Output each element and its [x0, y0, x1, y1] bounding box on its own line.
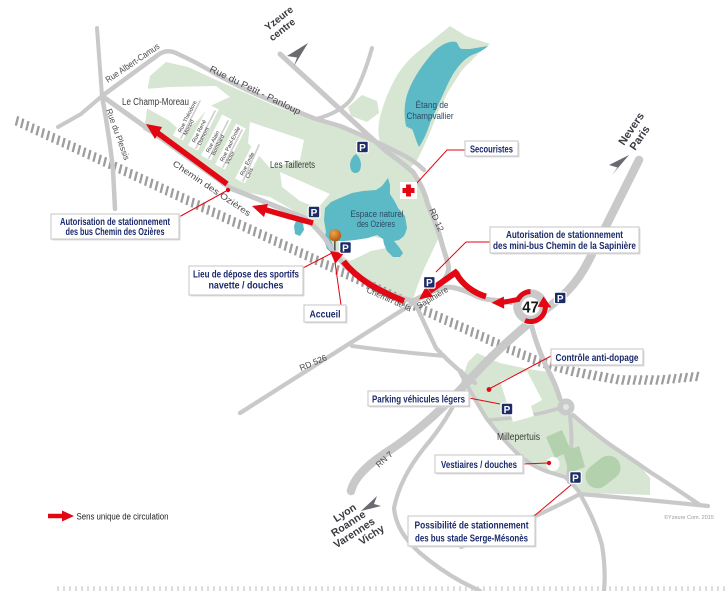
svg-text:©Yzeure Com. 2015: ©Yzeure Com. 2015: [664, 514, 714, 521]
svg-text:Possibilité de stationnement: Possibilité de stationnement: [415, 521, 530, 532]
svg-text:des bus stade Serge-Mésonès: des bus stade Serge-Mésonès: [415, 534, 528, 545]
svg-text:P: P: [426, 278, 433, 289]
svg-text:des bus Chemin des Ozières: des bus Chemin des Ozières: [66, 227, 165, 238]
svg-text:P: P: [504, 405, 511, 416]
svg-text:Vestiaires / douches: Vestiaires / douches: [441, 460, 517, 471]
svg-text:Contrôle anti-dopage: Contrôle anti-dopage: [556, 353, 639, 364]
svg-text:P: P: [359, 143, 366, 154]
svg-text:des mini-bus Chemin de la Sapi: des mini-bus Chemin de la Sapinière: [493, 241, 636, 252]
svg-text:Secouristes: Secouristes: [470, 144, 513, 155]
svg-text:Étang de: Étang de: [416, 100, 449, 111]
svg-text:navette / douches: navette / douches: [209, 281, 284, 292]
svg-text:Millepertuis: Millepertuis: [497, 432, 540, 443]
svg-text:Champvallier: Champvallier: [407, 111, 454, 122]
svg-text:Les Taillerets: Les Taillerets: [270, 160, 315, 171]
svg-text:Parking véhicules légers: Parking véhicules légers: [372, 395, 465, 406]
svg-text:Sens unique de circulation: Sens unique de circulation: [77, 512, 169, 522]
svg-text:des Ozières: des Ozières: [357, 219, 395, 230]
svg-text:Autorisation de stationnement: Autorisation de stationnement: [506, 230, 624, 241]
svg-text:Le Champ-Moreau: Le Champ-Moreau: [122, 97, 189, 108]
svg-text:P: P: [572, 473, 579, 484]
svg-text:P: P: [557, 294, 564, 305]
svg-text:47: 47: [522, 300, 539, 317]
svg-text:P: P: [342, 243, 349, 254]
svg-text:Accueil: Accueil: [310, 310, 341, 321]
svg-text:Lieu de dépose des sportifs: Lieu de dépose des sportifs: [193, 270, 299, 281]
svg-text:P: P: [311, 208, 318, 219]
